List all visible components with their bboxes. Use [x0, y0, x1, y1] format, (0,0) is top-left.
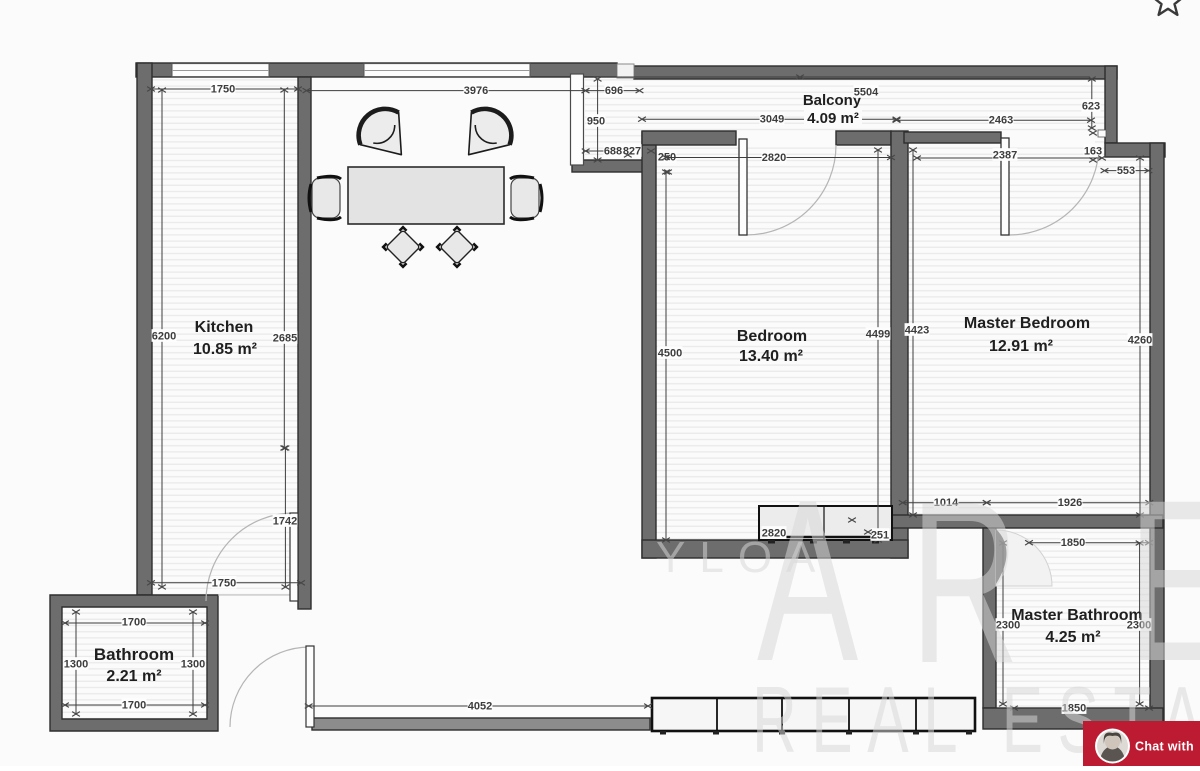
svg-text:2685: 2685 [273, 333, 297, 345]
svg-text:1750: 1750 [211, 84, 235, 96]
svg-text:251: 251 [871, 530, 889, 542]
svg-text:4423: 4423 [905, 325, 929, 337]
svg-text:1750: 1750 [212, 577, 236, 589]
svg-text:12.91 m²: 12.91 m² [989, 338, 1053, 355]
svg-text:4500: 4500 [658, 348, 682, 360]
svg-text:3049: 3049 [760, 114, 784, 126]
svg-text:3976: 3976 [464, 85, 488, 97]
svg-text:2820: 2820 [762, 152, 786, 164]
svg-text:Master Bedroom: Master Bedroom [964, 315, 1090, 332]
svg-text:6200: 6200 [152, 331, 176, 343]
svg-text:1926: 1926 [1058, 497, 1082, 509]
svg-text:4.25 m²: 4.25 m² [1045, 629, 1100, 646]
svg-text:1700: 1700 [122, 617, 146, 629]
svg-text:4260: 4260 [1128, 335, 1152, 347]
svg-text:13.40 m²: 13.40 m² [739, 348, 803, 365]
svg-text:Bedroom: Bedroom [737, 328, 807, 345]
svg-text:5504: 5504 [854, 87, 879, 99]
svg-text:163: 163 [1084, 146, 1102, 158]
svg-text:1300: 1300 [64, 659, 88, 671]
svg-text:696: 696 [605, 85, 623, 97]
svg-text:Master Bathroom: Master Bathroom [1011, 607, 1143, 624]
svg-text:553: 553 [1117, 165, 1135, 177]
svg-text:688: 688 [604, 146, 622, 158]
svg-text:1850: 1850 [1061, 537, 1085, 549]
svg-text:950: 950 [587, 116, 605, 128]
svg-text:2387: 2387 [993, 150, 1017, 162]
svg-text:Bathroom: Bathroom [94, 645, 174, 664]
svg-text:2463: 2463 [989, 115, 1013, 127]
svg-text:1742: 1742 [273, 516, 297, 528]
svg-text:1700: 1700 [122, 700, 146, 712]
svg-text:4.09 m²: 4.09 m² [807, 110, 859, 127]
svg-text:Chat with: Chat with [1135, 740, 1194, 754]
svg-text:623: 623 [1082, 101, 1100, 113]
svg-text:Kitchen: Kitchen [195, 319, 254, 336]
svg-text:10.85 m²: 10.85 m² [193, 341, 257, 358]
svg-text:4499: 4499 [866, 329, 890, 341]
svg-text:2.21 m²: 2.21 m² [106, 668, 161, 685]
svg-text:4052: 4052 [468, 701, 492, 713]
svg-text:1300: 1300 [181, 659, 205, 671]
